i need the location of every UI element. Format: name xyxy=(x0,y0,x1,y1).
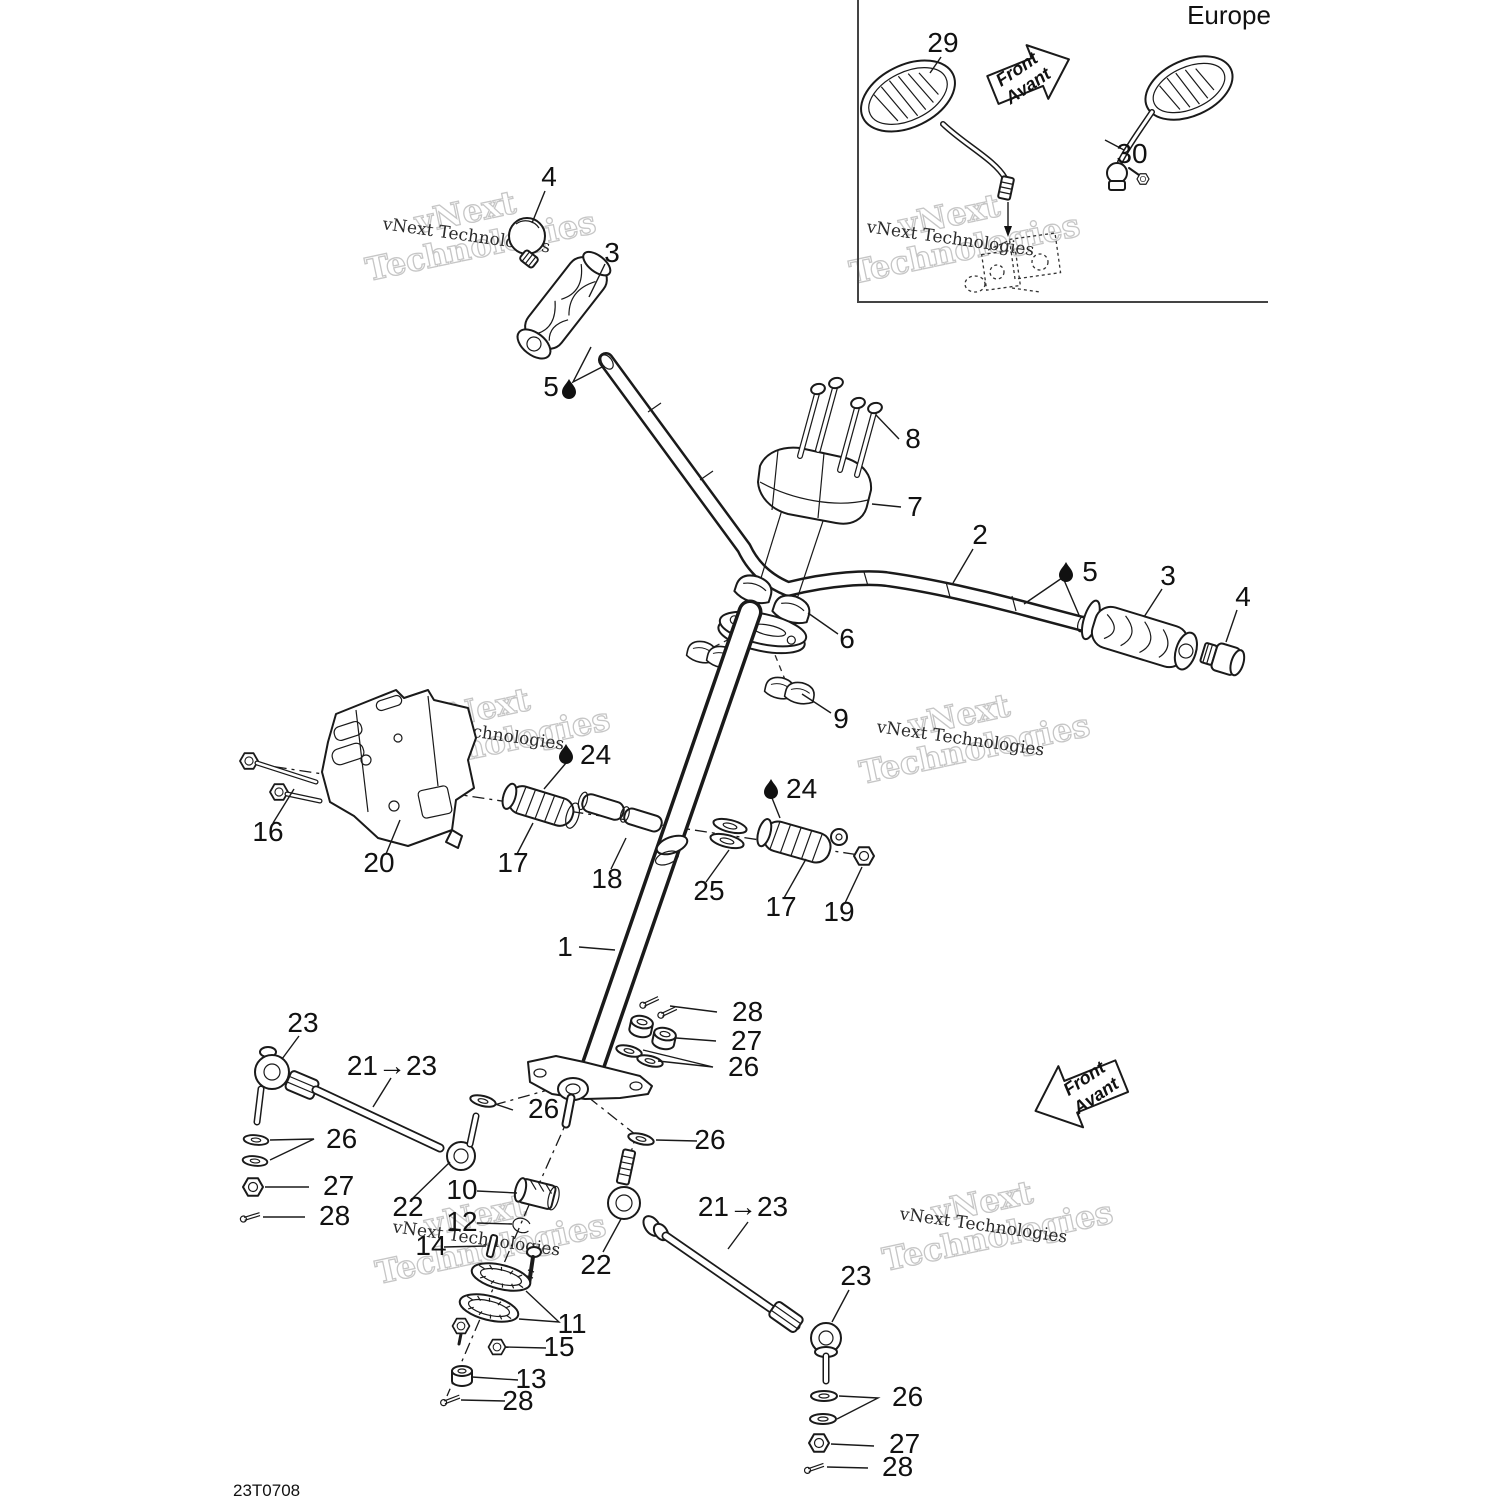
grease-drop-icon xyxy=(764,779,778,799)
callout-washers-lower-left: 26 xyxy=(326,1123,357,1154)
serrated-flange-part xyxy=(469,1258,533,1296)
callout-bracket-bolts: 16 xyxy=(252,816,283,847)
callout-tie-rod-end-right: 23 xyxy=(840,1260,871,1291)
callout-grease-right: 5 xyxy=(1082,556,1098,587)
parts-diagram-page: vNext Technologies vNext Technologies vN… xyxy=(0,0,1500,1500)
cotter-pin-part xyxy=(440,1395,461,1406)
callout-tie-rod-range-left: 21→23 xyxy=(347,1050,437,1081)
steering-exploded-diagram: vNext Technologies vNext Technologies vN… xyxy=(0,0,1500,1500)
callout-clamp-half-left: 17 xyxy=(497,847,528,878)
callout-circlip: 12 xyxy=(446,1206,477,1237)
callout-grip-cap-left: 4 xyxy=(541,161,557,192)
callout-grip-cap-right: 4 xyxy=(1235,581,1251,612)
clamp-half-right-part xyxy=(754,817,847,866)
flange-nut-part xyxy=(489,1340,506,1355)
grease-drop-icon xyxy=(1059,562,1073,582)
callout-grip-left: 3 xyxy=(604,237,620,268)
drawing-number: 23T0708 xyxy=(233,1481,300,1500)
clamp-nut-part xyxy=(854,847,874,864)
inset-region-label: Europe xyxy=(1187,0,1271,30)
grip-cap-right-part xyxy=(1199,639,1247,678)
callout-handlebar-pad: 7 xyxy=(907,491,923,522)
grip-right-part xyxy=(1077,599,1201,674)
callout-cotter-lower-right: 28 xyxy=(882,1451,913,1482)
callout-grip-right: 3 xyxy=(1160,560,1176,591)
main-front-arrow: Front Avant xyxy=(1023,1046,1134,1142)
callout-thrust-washers: 25 xyxy=(693,875,724,906)
callout-bushings: 18 xyxy=(591,863,622,894)
callout-clamp-half-right: 17 xyxy=(765,891,796,922)
callout-cotter-lower-left: 28 xyxy=(319,1200,350,1231)
callout-washer-arm-left: 26 xyxy=(528,1093,559,1124)
callout-tie-rod-right: 22 xyxy=(580,1249,611,1280)
steering-column-part xyxy=(586,612,750,1086)
callout-washers-top: 26 xyxy=(728,1051,759,1082)
callout-handlebar: 2 xyxy=(972,519,988,550)
inset-front-arrow: Front Avant xyxy=(982,32,1080,116)
callout-mirror-right: 30 xyxy=(1116,138,1147,169)
callout-steering-column: 1 xyxy=(557,931,573,962)
callout-tie-rod-left: 22 xyxy=(392,1191,423,1222)
callout-grease-clamp-right: 24 xyxy=(786,773,817,804)
callout-mirror-left: 29 xyxy=(927,27,958,58)
bracket-bolts-part xyxy=(240,753,320,801)
callout-roll-pin: 14 xyxy=(415,1230,446,1261)
column-nut-part xyxy=(452,1366,472,1386)
callout-washer-arm-right: 26 xyxy=(694,1124,725,1155)
callout-bearing: 10 xyxy=(446,1174,477,1205)
callout-washers-lower-right: 26 xyxy=(892,1381,923,1412)
grip-cap-left-part xyxy=(509,218,545,269)
support-bracket-part xyxy=(322,690,476,848)
thrust-washers-part xyxy=(709,816,748,851)
callout-nut-lower-left: 27 xyxy=(323,1170,354,1201)
callout-pad-bolts: 8 xyxy=(905,423,921,454)
callout-tie-rod-end-left: 23 xyxy=(287,1007,318,1038)
callout-clamp-upper: 6 xyxy=(839,623,855,654)
callout-clamp-caps: 9 xyxy=(833,703,849,734)
callout-cotter-pins-top: 28 xyxy=(732,996,763,1027)
callout-cotter-center: 28 xyxy=(502,1385,533,1416)
callout-grease-clamp-left: 24 xyxy=(580,739,611,770)
clamp-half-left-part xyxy=(500,781,583,831)
hex-bolt-part xyxy=(453,1319,470,1344)
callout-tie-rod-range-right: 21→23 xyxy=(698,1191,788,1222)
callout-flange-nut: 15 xyxy=(543,1331,574,1362)
callout-support-bracket: 20 xyxy=(363,847,394,878)
callout-clamp-nut: 19 xyxy=(823,896,854,927)
callout-grease-left: 5 xyxy=(543,371,559,402)
bushings-part xyxy=(576,791,663,833)
